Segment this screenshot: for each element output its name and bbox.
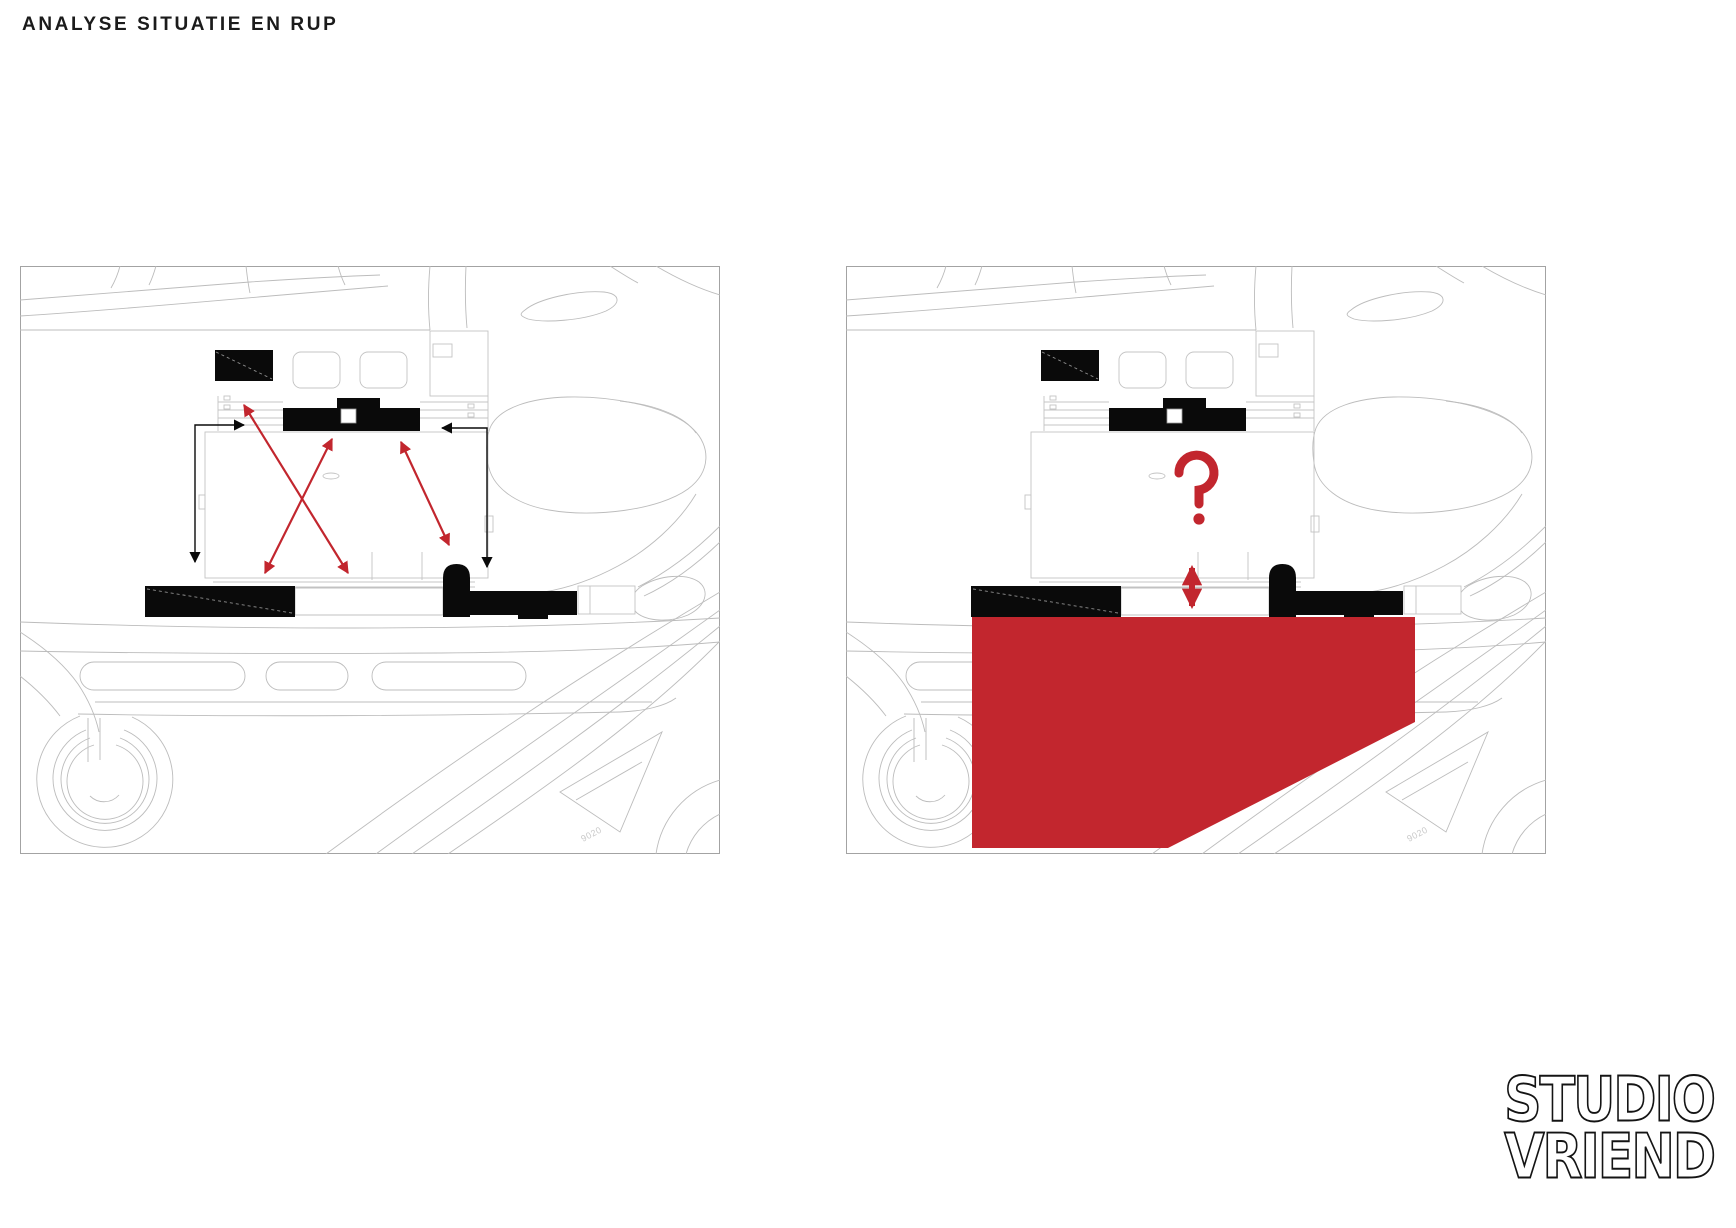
route-arrows-black: [195, 425, 487, 567]
rup-zone-red: [972, 617, 1415, 848]
studio-vriend-logo: STUDIO VRIEND: [1422, 1064, 1722, 1224]
logo-line-2: VRIEND: [1504, 1121, 1714, 1192]
map-label-9020: 9020: [1405, 825, 1429, 844]
panel-situatie: 9020: [20, 266, 720, 854]
panel-rup: 9020: [846, 266, 1546, 854]
slide-canvas: ANALYSE SITUATIE EN RUP: [0, 0, 1736, 1228]
map-label-9020: 9020: [579, 825, 603, 844]
question-mark-icon: [1179, 455, 1214, 524]
site-plan-base: [20, 266, 720, 854]
page-title: ANALYSE SITUATIE EN RUP: [22, 14, 338, 36]
